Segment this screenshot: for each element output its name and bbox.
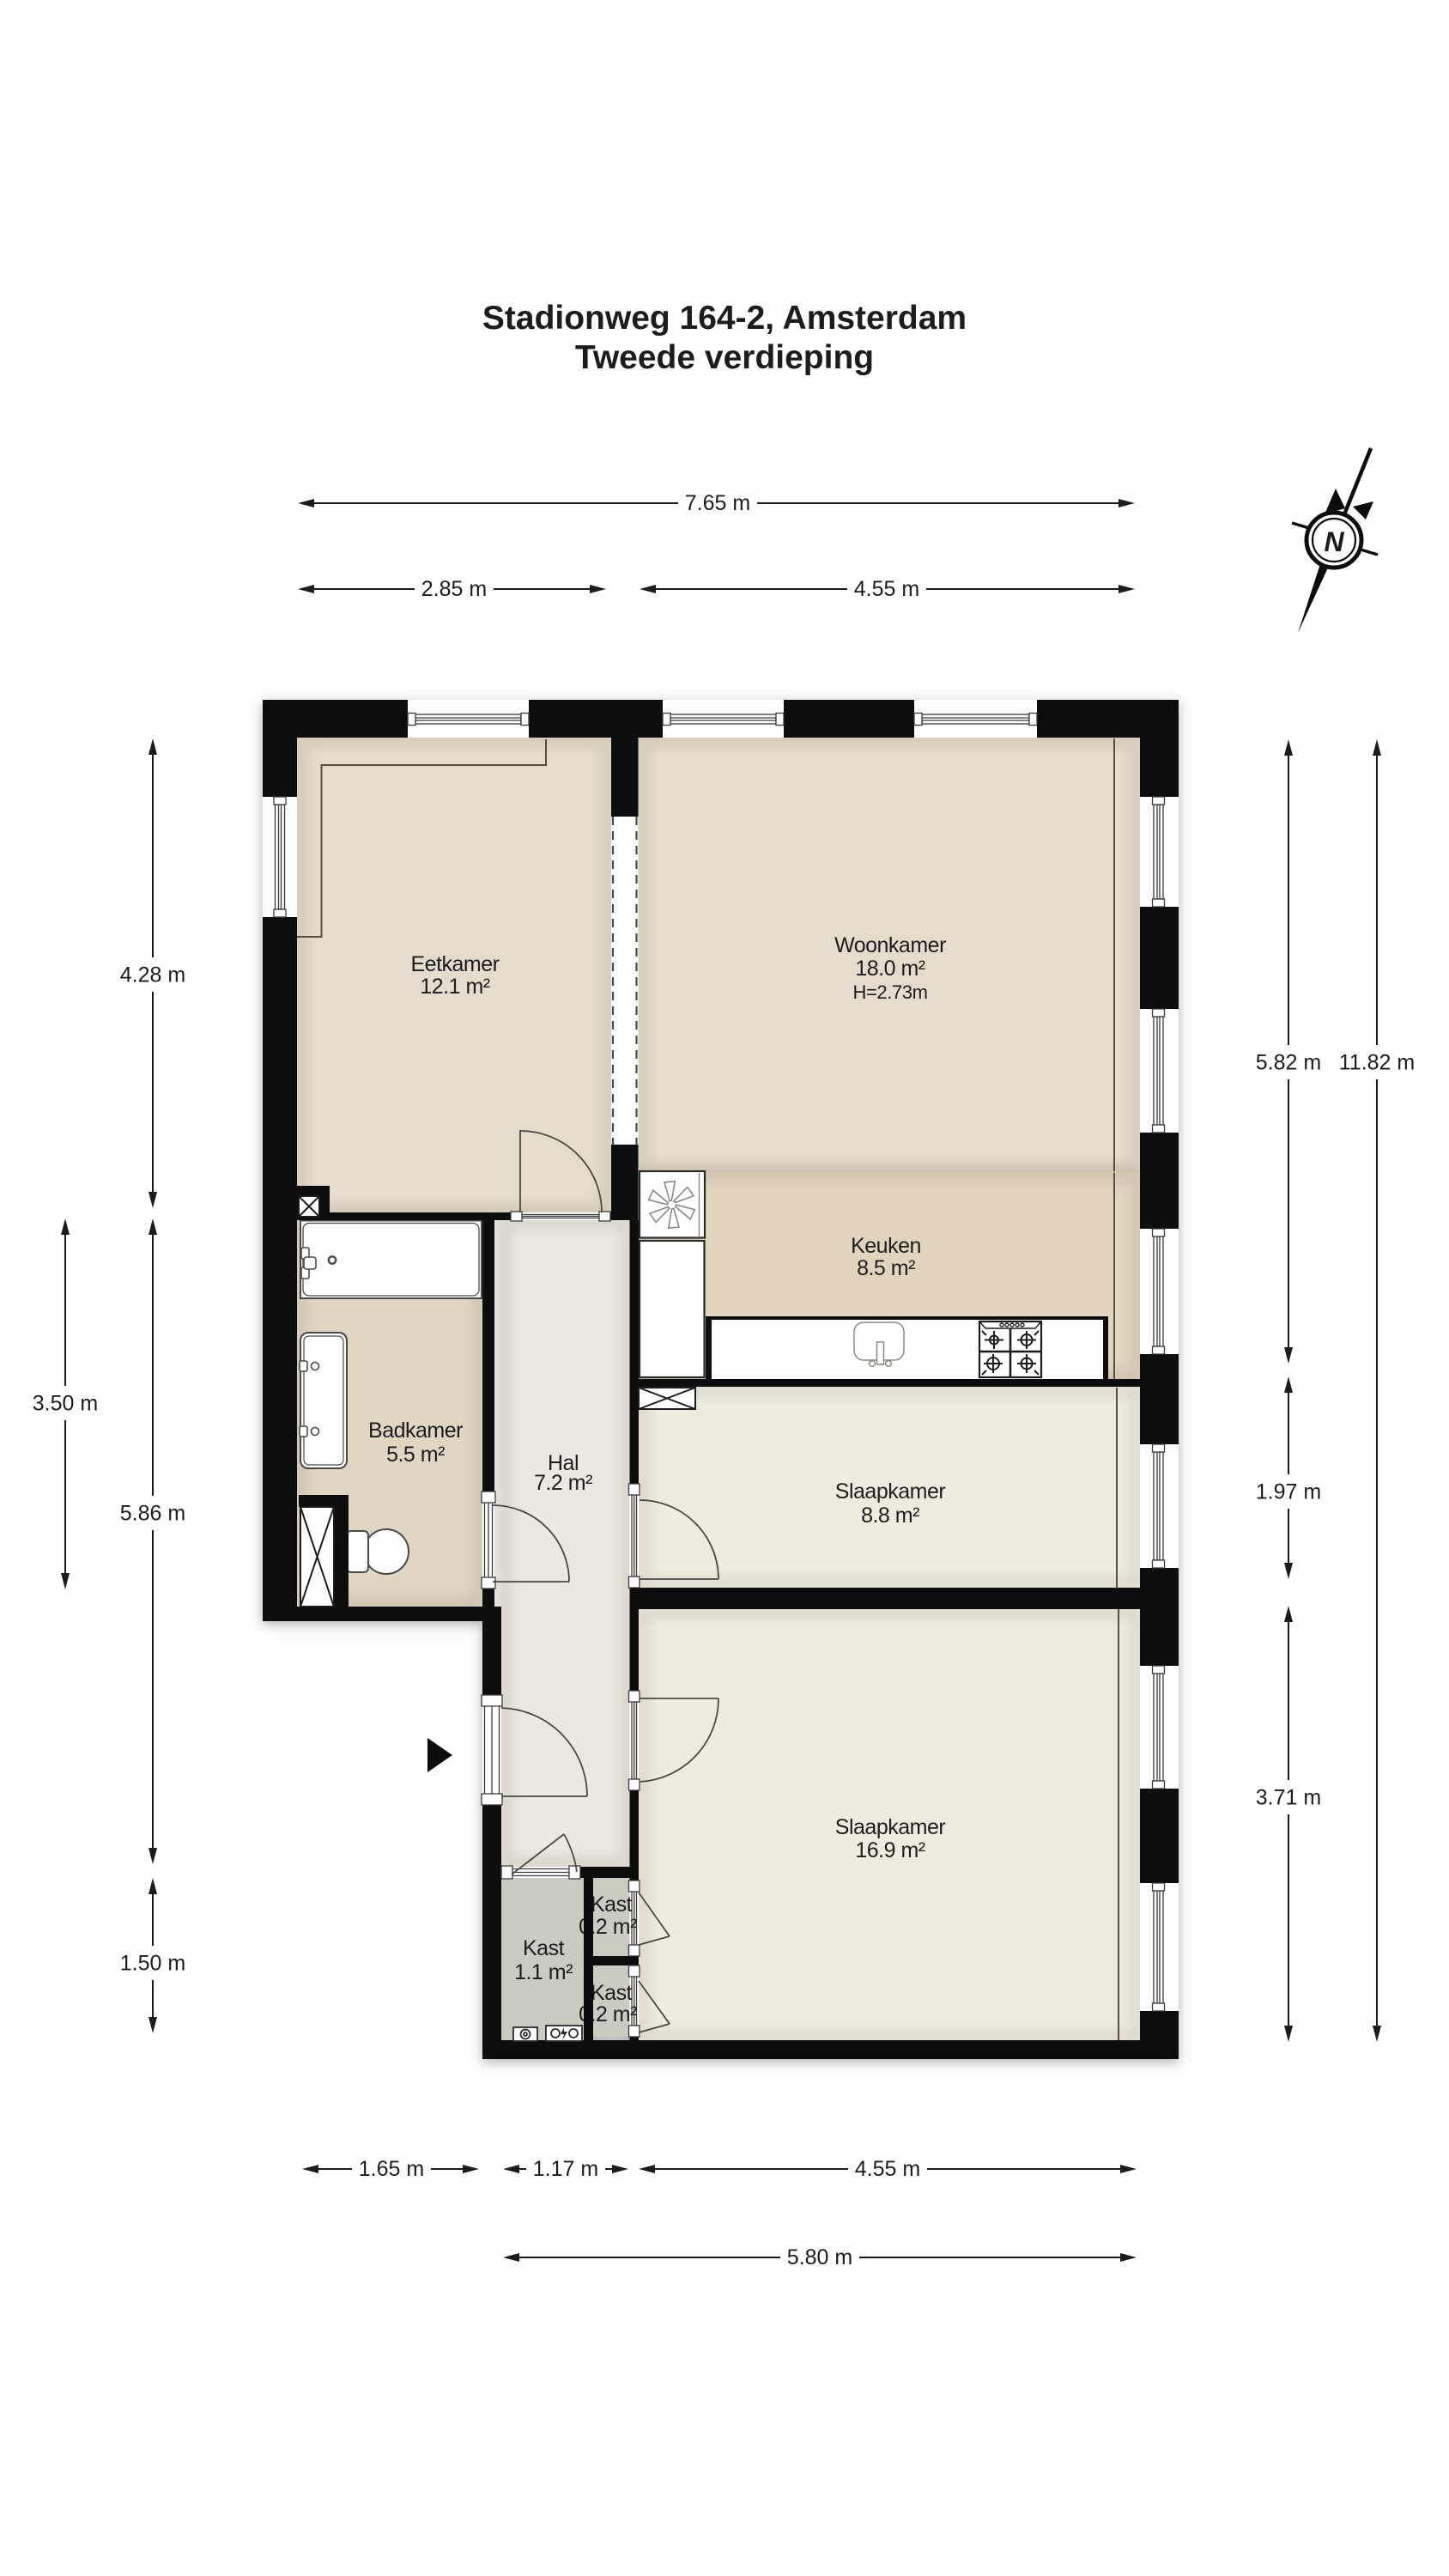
svg-text:8.5 m²: 8.5 m² — [857, 1256, 915, 1280]
svg-text:7.65 m: 7.65 m — [685, 491, 750, 515]
svg-text:12.1 m²: 12.1 m² — [420, 975, 489, 999]
svg-text:1.50 m: 1.50 m — [120, 1952, 185, 1976]
svg-text:4.55 m: 4.55 m — [855, 2157, 920, 2181]
svg-text:5.82 m: 5.82 m — [1256, 1051, 1321, 1075]
svg-text:16.9 m²: 16.9 m² — [855, 1838, 925, 1862]
svg-text:5.86 m: 5.86 m — [120, 1502, 185, 1526]
svg-text:8.8 m²: 8.8 m² — [861, 1504, 919, 1528]
svg-text:Keuken: Keuken — [851, 1234, 921, 1258]
svg-text:1.17 m: 1.17 m — [533, 2157, 598, 2181]
svg-text:Badkamer: Badkamer — [368, 1419, 463, 1443]
svg-text:4.28 m: 4.28 m — [120, 963, 185, 987]
svg-text:Tweede verdieping: Tweede verdieping — [575, 339, 874, 376]
svg-text:Eetkamer: Eetkamer — [411, 952, 500, 976]
svg-text:3.50 m: 3.50 m — [33, 1392, 98, 1416]
svg-text:H=2.73m: H=2.73m — [852, 981, 927, 1003]
svg-text:1.65 m: 1.65 m — [359, 2157, 424, 2181]
svg-text:3.71 m: 3.71 m — [1256, 1786, 1321, 1810]
svg-text:1.97 m: 1.97 m — [1256, 1480, 1321, 1504]
svg-text:N: N — [1324, 526, 1344, 557]
svg-text:Slaapkamer: Slaapkamer — [835, 1815, 946, 1839]
svg-text:Woonkamer: Woonkamer — [834, 933, 946, 957]
svg-text:4.55 m: 4.55 m — [854, 577, 919, 601]
svg-text:Kast: Kast — [591, 1893, 633, 1917]
svg-text:11.82 m: 11.82 m — [1339, 1051, 1415, 1075]
svg-text:18.0 m²: 18.0 m² — [855, 957, 925, 981]
svg-text:5.80 m: 5.80 m — [787, 2245, 852, 2269]
svg-text:Slaapkamer: Slaapkamer — [835, 1479, 946, 1504]
svg-text:Stadionweg 164-2, Amsterdam: Stadionweg 164-2, Amsterdam — [482, 300, 967, 337]
svg-text:Kast: Kast — [523, 1936, 565, 1960]
svg-text:2.85 m: 2.85 m — [421, 577, 487, 601]
svg-text:1.1 m²: 1.1 m² — [514, 1960, 573, 1984]
svg-text:Kast: Kast — [591, 1981, 633, 2005]
svg-text:7.2 m²: 7.2 m² — [534, 1471, 592, 1495]
svg-text:5.5 m²: 5.5 m² — [386, 1443, 445, 1467]
